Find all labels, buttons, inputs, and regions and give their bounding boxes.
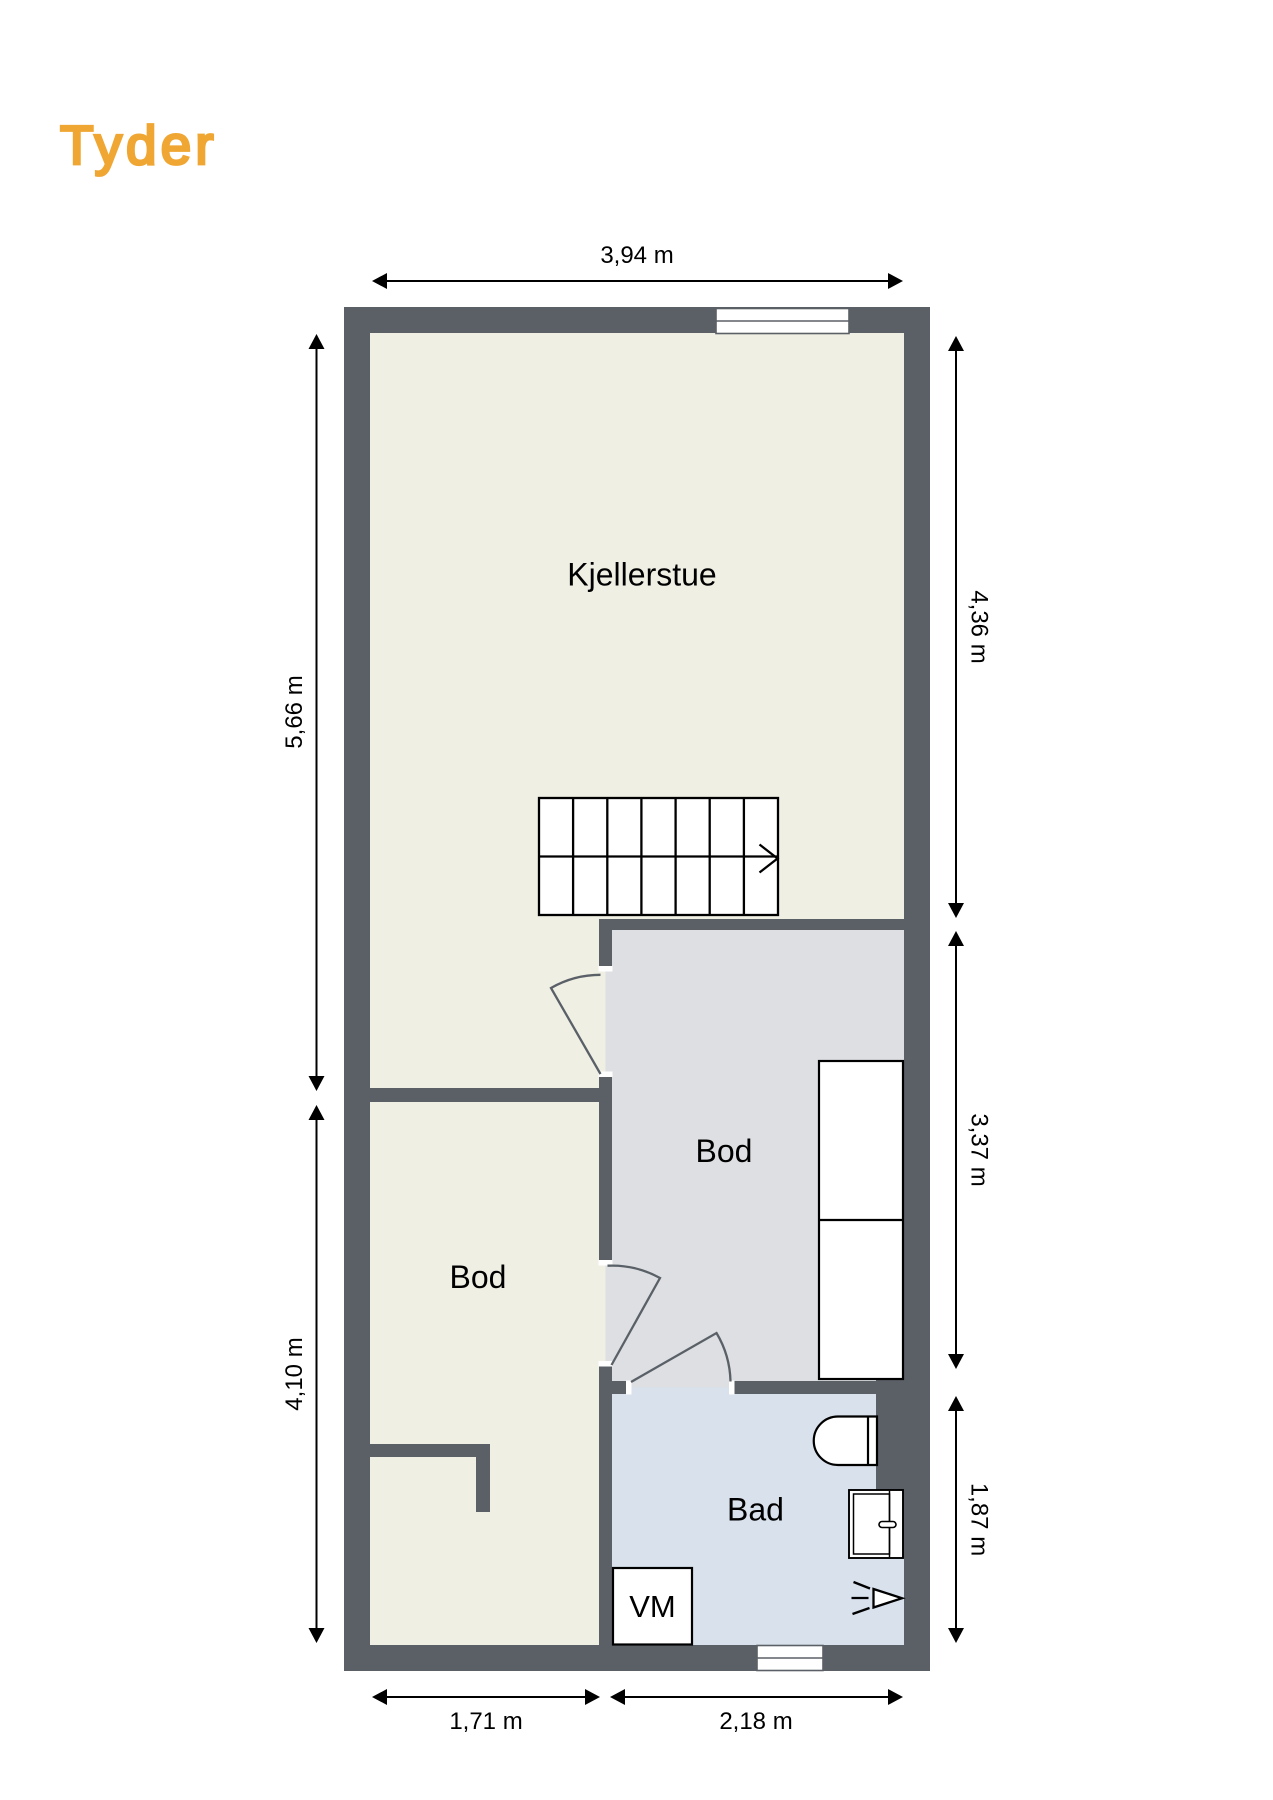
svg-text:3,94 m: 3,94 m — [600, 242, 673, 269]
svg-text:1,87 m: 1,87 m — [966, 1483, 993, 1556]
svg-text:4,10 m: 4,10 m — [281, 1337, 308, 1410]
svg-text:Bad: Bad — [727, 1492, 784, 1528]
svg-text:Kjellerstue: Kjellerstue — [567, 557, 716, 593]
svg-text:1,71 m: 1,71 m — [449, 1708, 522, 1735]
svg-text:2,18 m: 2,18 m — [719, 1708, 792, 1735]
svg-text:Tyder: Tyder — [60, 114, 218, 176]
svg-text:Bod: Bod — [450, 1259, 507, 1295]
svg-text:3,37 m: 3,37 m — [966, 1113, 993, 1186]
svg-text:4,36 m: 4,36 m — [966, 590, 993, 663]
svg-text:Bod: Bod — [696, 1133, 753, 1169]
svg-text:5,66 m: 5,66 m — [281, 675, 308, 748]
svg-text:VM: VM — [629, 1589, 676, 1624]
